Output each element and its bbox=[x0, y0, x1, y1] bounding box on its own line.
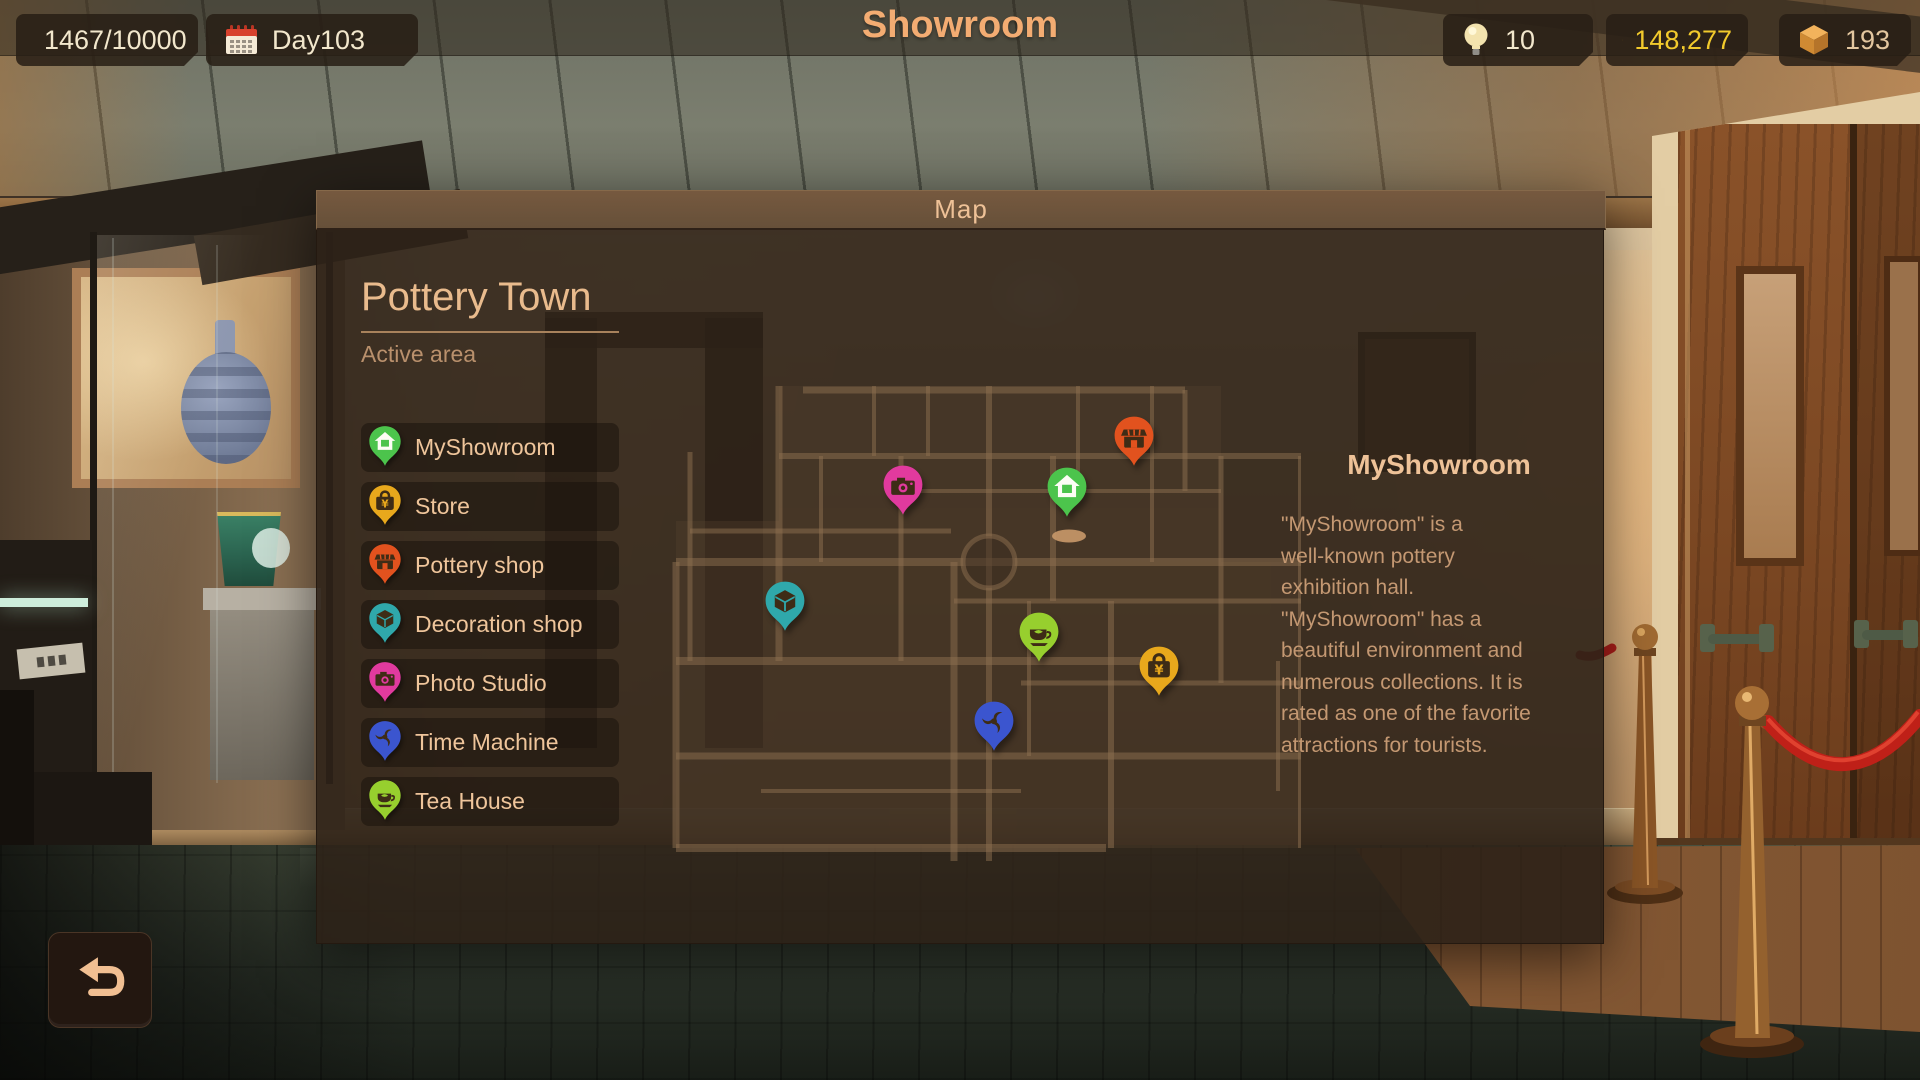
legend-label: Photo Studio bbox=[415, 670, 547, 697]
map-marker-dot bbox=[1052, 530, 1086, 543]
level-progress-panel: 9 1467/10000 bbox=[16, 14, 198, 66]
map-pin-store[interactable] bbox=[1137, 644, 1181, 701]
legend-label: Pottery shop bbox=[415, 552, 544, 579]
legend-label: Decoration shop bbox=[415, 611, 583, 638]
money-panel: ¥ 148,277 bbox=[1606, 14, 1748, 66]
calendar-icon bbox=[222, 21, 260, 59]
clay-value: 193 bbox=[1845, 25, 1890, 56]
legend-item-decoration-shop[interactable]: Decoration shop bbox=[361, 600, 619, 649]
game-screen: ¥ bbox=[0, 0, 1920, 1080]
legend-item-pottery-shop[interactable]: Pottery shop bbox=[361, 541, 619, 590]
vortex-pin-icon bbox=[367, 719, 403, 765]
return-arrow-icon bbox=[71, 951, 129, 1009]
inspiration-value: 10 bbox=[1505, 25, 1535, 56]
legend-label: Store bbox=[415, 493, 470, 520]
map-dialog-titlebar: Map bbox=[316, 190, 1606, 230]
clay-panel: 193 bbox=[1779, 14, 1911, 66]
detail-description: "MyShowroom" is a well-known pottery exh… bbox=[1281, 509, 1597, 761]
back-button[interactable] bbox=[48, 932, 152, 1028]
map-pin-myshowroom[interactable] bbox=[1045, 465, 1089, 522]
location-detail: MyShowroom "MyShowroom" is a well-known … bbox=[1281, 449, 1597, 761]
map-dialog-title: Map bbox=[934, 194, 988, 225]
map-pin-decoration-shop[interactable] bbox=[763, 579, 807, 636]
town-map[interactable] bbox=[661, 361, 1301, 861]
day-text: Day103 bbox=[272, 25, 365, 56]
day-panel: Day103 bbox=[206, 14, 418, 66]
legend-label: Tea House bbox=[415, 788, 525, 815]
legend-item-time-machine[interactable]: Time Machine bbox=[361, 718, 619, 767]
lightbulb-icon bbox=[1459, 19, 1493, 61]
street-grid bbox=[661, 361, 1301, 861]
teacup-pin-icon bbox=[367, 778, 403, 824]
decor-box-pin-icon bbox=[367, 601, 403, 647]
clay-cube-icon bbox=[1795, 21, 1833, 59]
camera-pin-icon bbox=[367, 660, 403, 706]
money-value: 148,277 bbox=[1634, 25, 1732, 56]
area-status: Active area bbox=[361, 341, 476, 368]
map-dialog: Map Pottery Town Active area MyShowroom … bbox=[316, 190, 1604, 944]
shop-bag-pin-icon bbox=[367, 483, 403, 529]
legend-label: MyShowroom bbox=[415, 434, 556, 461]
roundabout bbox=[963, 536, 1015, 588]
house-pin-icon bbox=[367, 424, 403, 470]
map-pin-photo-studio[interactable] bbox=[881, 463, 925, 520]
map-pin-time-machine[interactable] bbox=[972, 699, 1016, 756]
detail-title: MyShowroom bbox=[1281, 449, 1597, 481]
legend-item-store[interactable]: Store bbox=[361, 482, 619, 531]
area-underline bbox=[361, 331, 619, 333]
inspiration-panel: 10 bbox=[1443, 14, 1593, 66]
legend-item-tea-house[interactable]: Tea House bbox=[361, 777, 619, 826]
top-hud-bar: Showroom 9 1467/10000 bbox=[0, 0, 1920, 56]
map-pin-pottery-shop[interactable] bbox=[1112, 414, 1156, 471]
legend-item-myshowroom[interactable]: MyShowroom bbox=[361, 423, 619, 472]
map-pin-tea-house[interactable] bbox=[1017, 610, 1061, 667]
storefront-pin-icon bbox=[367, 542, 403, 588]
area-name: Pottery Town bbox=[361, 275, 592, 320]
legend-label: Time Machine bbox=[415, 729, 559, 756]
map-legend: MyShowroom Store Pottery shop Decoration… bbox=[361, 423, 619, 836]
level-progress-text: 1467/10000 bbox=[44, 25, 187, 56]
legend-item-photo-studio[interactable]: Photo Studio bbox=[361, 659, 619, 708]
